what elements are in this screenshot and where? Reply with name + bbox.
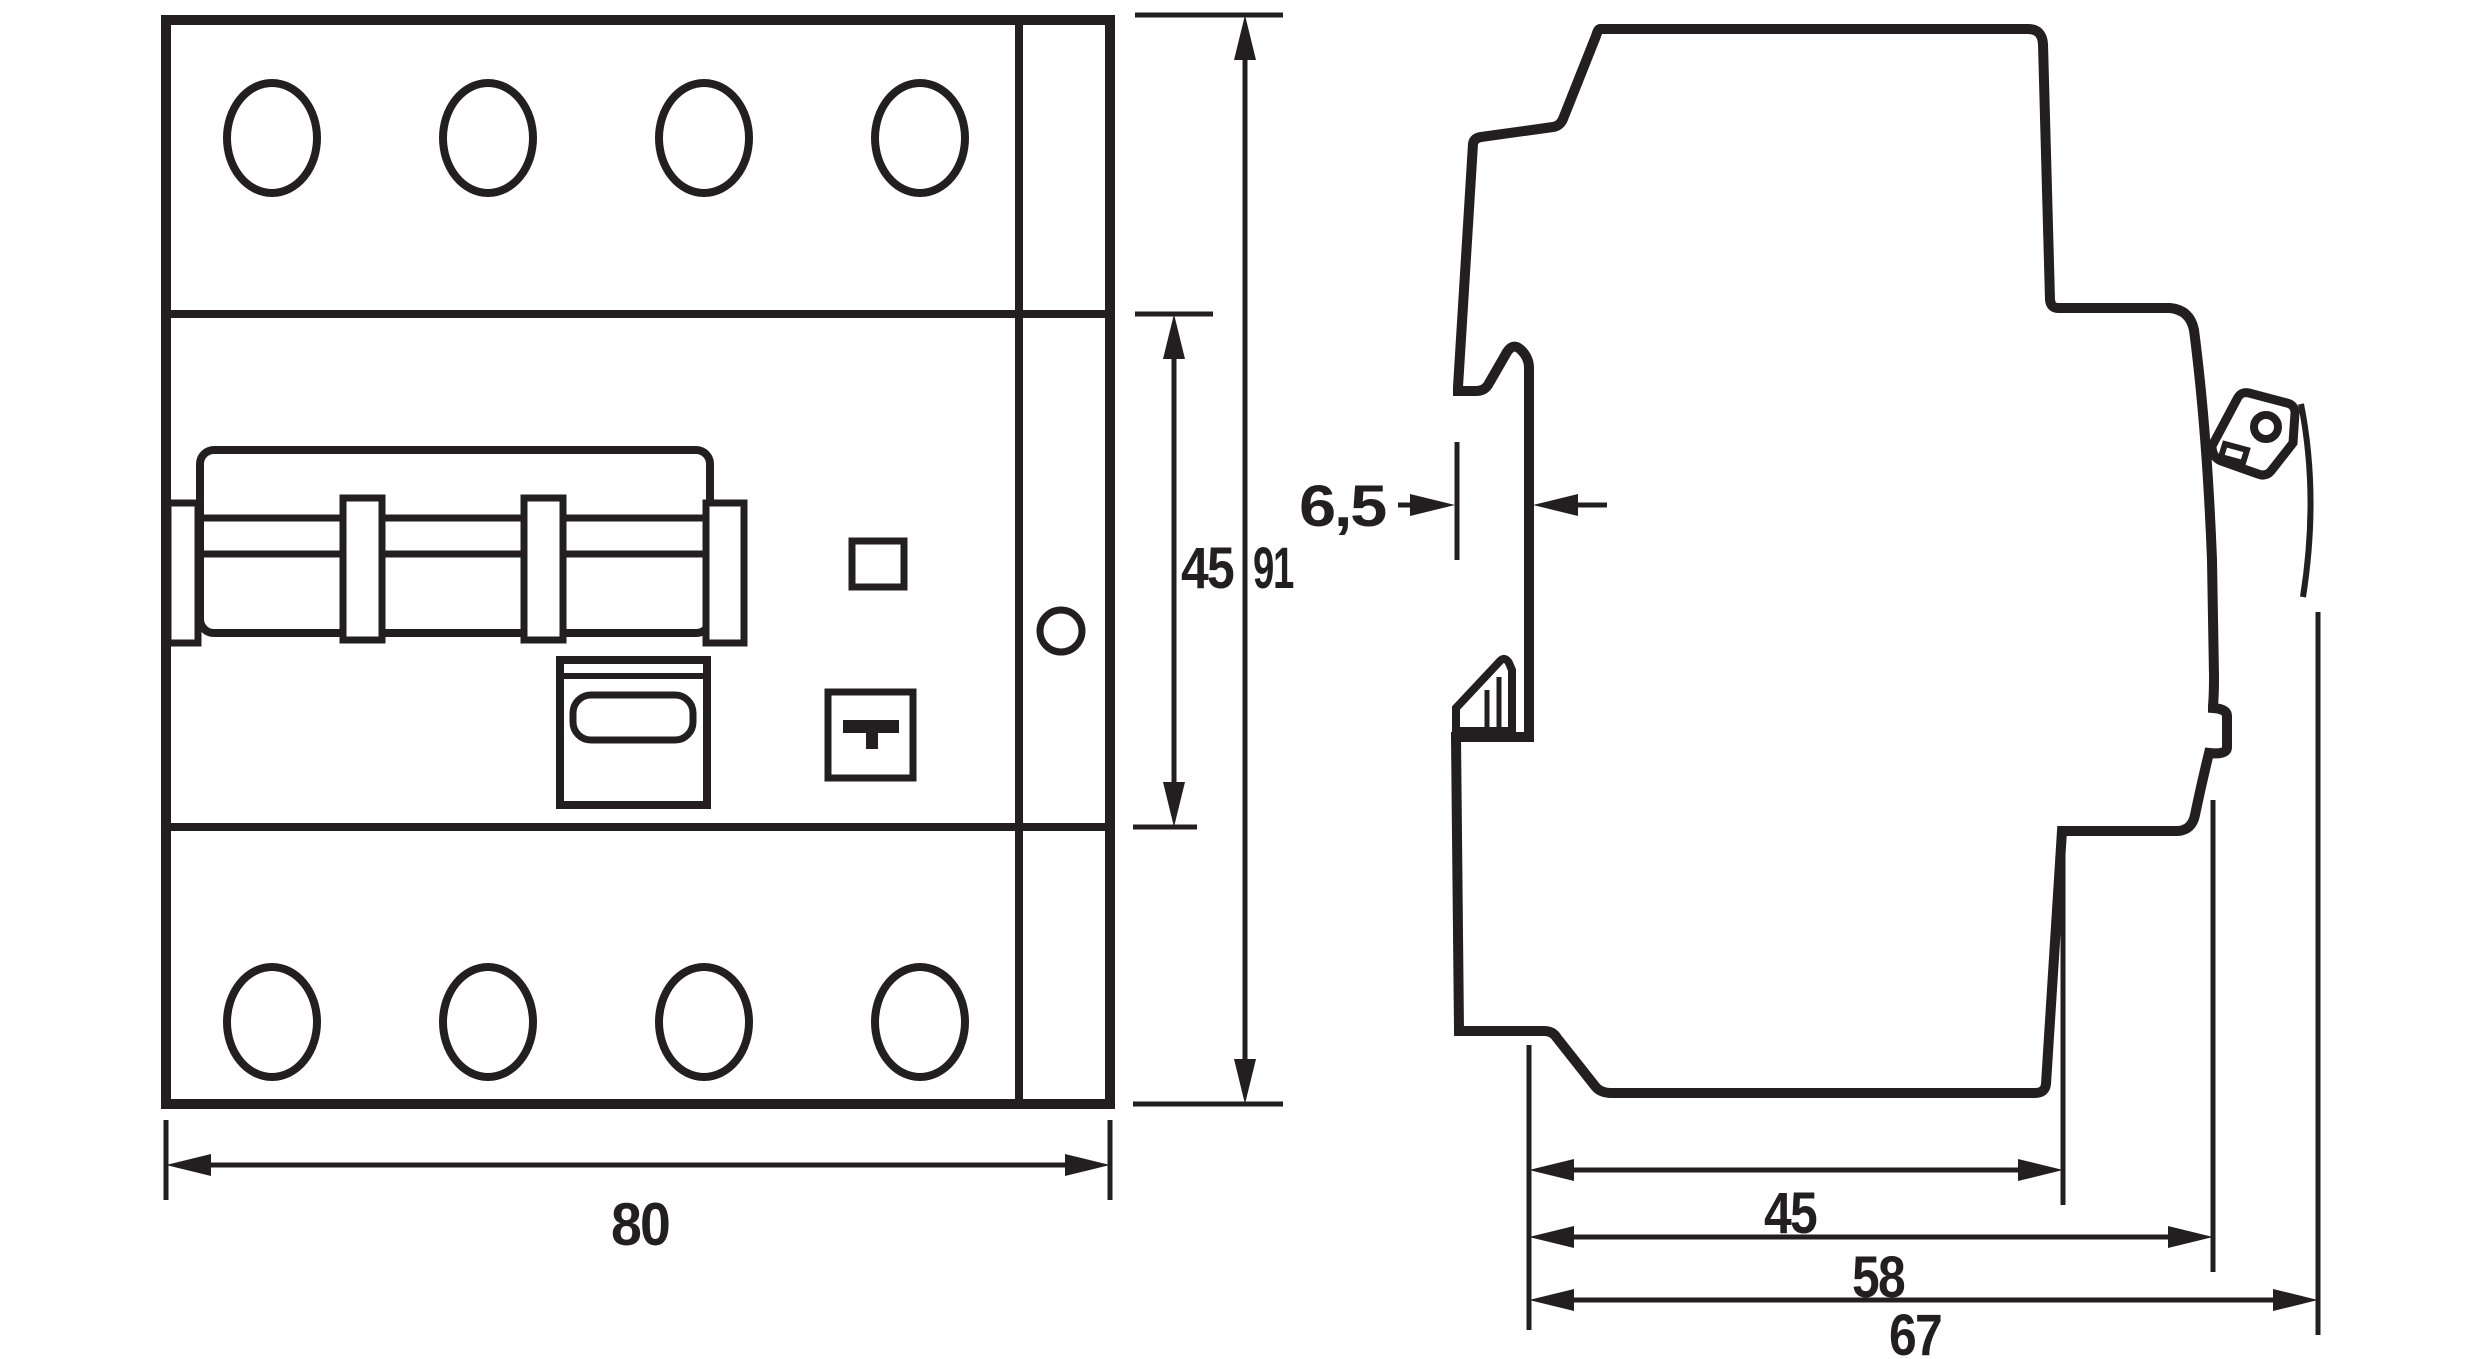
- terminal-hole: [227, 83, 317, 193]
- terminal-hole: [875, 967, 965, 1077]
- front-view: [166, 20, 1110, 1104]
- arrowhead-right: [2168, 1226, 2213, 1248]
- toggle-handle: [524, 498, 563, 640]
- arrowhead-down: [1163, 782, 1185, 827]
- crossbar-end-cap-right: [706, 503, 744, 643]
- dimension-6-5: 6,5: [1299, 442, 1607, 560]
- side-bottom-extension-lines: [1529, 612, 2318, 1335]
- terminal-hole: [443, 83, 533, 193]
- terminal-hole: [227, 967, 317, 1077]
- indicator-window: [573, 695, 693, 740]
- dimension-67-depth: 67: [1529, 1289, 2318, 1359]
- dim-45-label: 45: [1181, 536, 1234, 601]
- test-button-glyph-stem: [866, 733, 878, 749]
- release-latch-slot: [2221, 444, 2247, 463]
- terminal-hole: [659, 83, 749, 193]
- arrowhead-down: [1234, 1059, 1256, 1104]
- toggle-crossbar: [198, 518, 706, 554]
- dim-67-depth-label: 67: [1889, 1303, 1941, 1359]
- arrowhead-left: [1529, 1289, 1574, 1311]
- arrowhead-right: [2018, 1159, 2063, 1181]
- test-button-glyph: [843, 720, 899, 749]
- dimension-45-vertical: 45: [1133, 314, 1234, 827]
- indicator-square: [852, 541, 904, 587]
- dim-80-label: 80: [611, 1191, 669, 1258]
- arrowhead-up: [1234, 15, 1256, 60]
- side-view: [1456, 29, 2311, 1093]
- release-latch-hole: [2254, 415, 2278, 439]
- toggle-handle: [343, 498, 382, 640]
- arrowhead-left: [166, 1154, 211, 1176]
- dim-6-5-label: 6,5: [1299, 474, 1386, 539]
- dimension-58-depth: 58: [1529, 1226, 2213, 1310]
- din-rail-claw: [1456, 659, 1512, 731]
- arrowhead-left: [1529, 1226, 1574, 1248]
- terminal-hole: [659, 967, 749, 1077]
- crossbar-end-cap-left: [168, 503, 198, 643]
- dimension-45-depth: 45: [1529, 1159, 2063, 1246]
- terminal-hole: [443, 967, 533, 1077]
- latch-swing-arc: [2301, 404, 2311, 597]
- arrowhead-right-pointing: [1410, 494, 1455, 516]
- arrowhead-right: [1065, 1154, 1110, 1176]
- status-led: [1040, 610, 1082, 652]
- dimension-80: 80: [166, 1120, 1110, 1258]
- dim-91-label: 91: [1253, 536, 1293, 601]
- terminal-holes-bottom: [227, 967, 965, 1077]
- switch-bezel: [200, 450, 710, 633]
- release-latch: [2212, 393, 2311, 597]
- technical-drawing-canvas: 80 45 91: [0, 0, 2480, 1359]
- test-button-glyph-bar: [843, 720, 899, 733]
- switch-module: [560, 660, 707, 805]
- side-profile-outline: [1456, 29, 2227, 1093]
- terminal-holes-top: [227, 83, 965, 193]
- arrowhead-left: [1529, 1159, 1574, 1181]
- arrowhead-right: [2273, 1289, 2318, 1311]
- drawing-page: 80 45 91: [0, 0, 2480, 1359]
- terminal-hole: [875, 83, 965, 193]
- arrowhead-left-pointing: [1533, 494, 1578, 516]
- arrowhead-up: [1163, 314, 1185, 359]
- front-housing-outline: [166, 20, 1110, 1104]
